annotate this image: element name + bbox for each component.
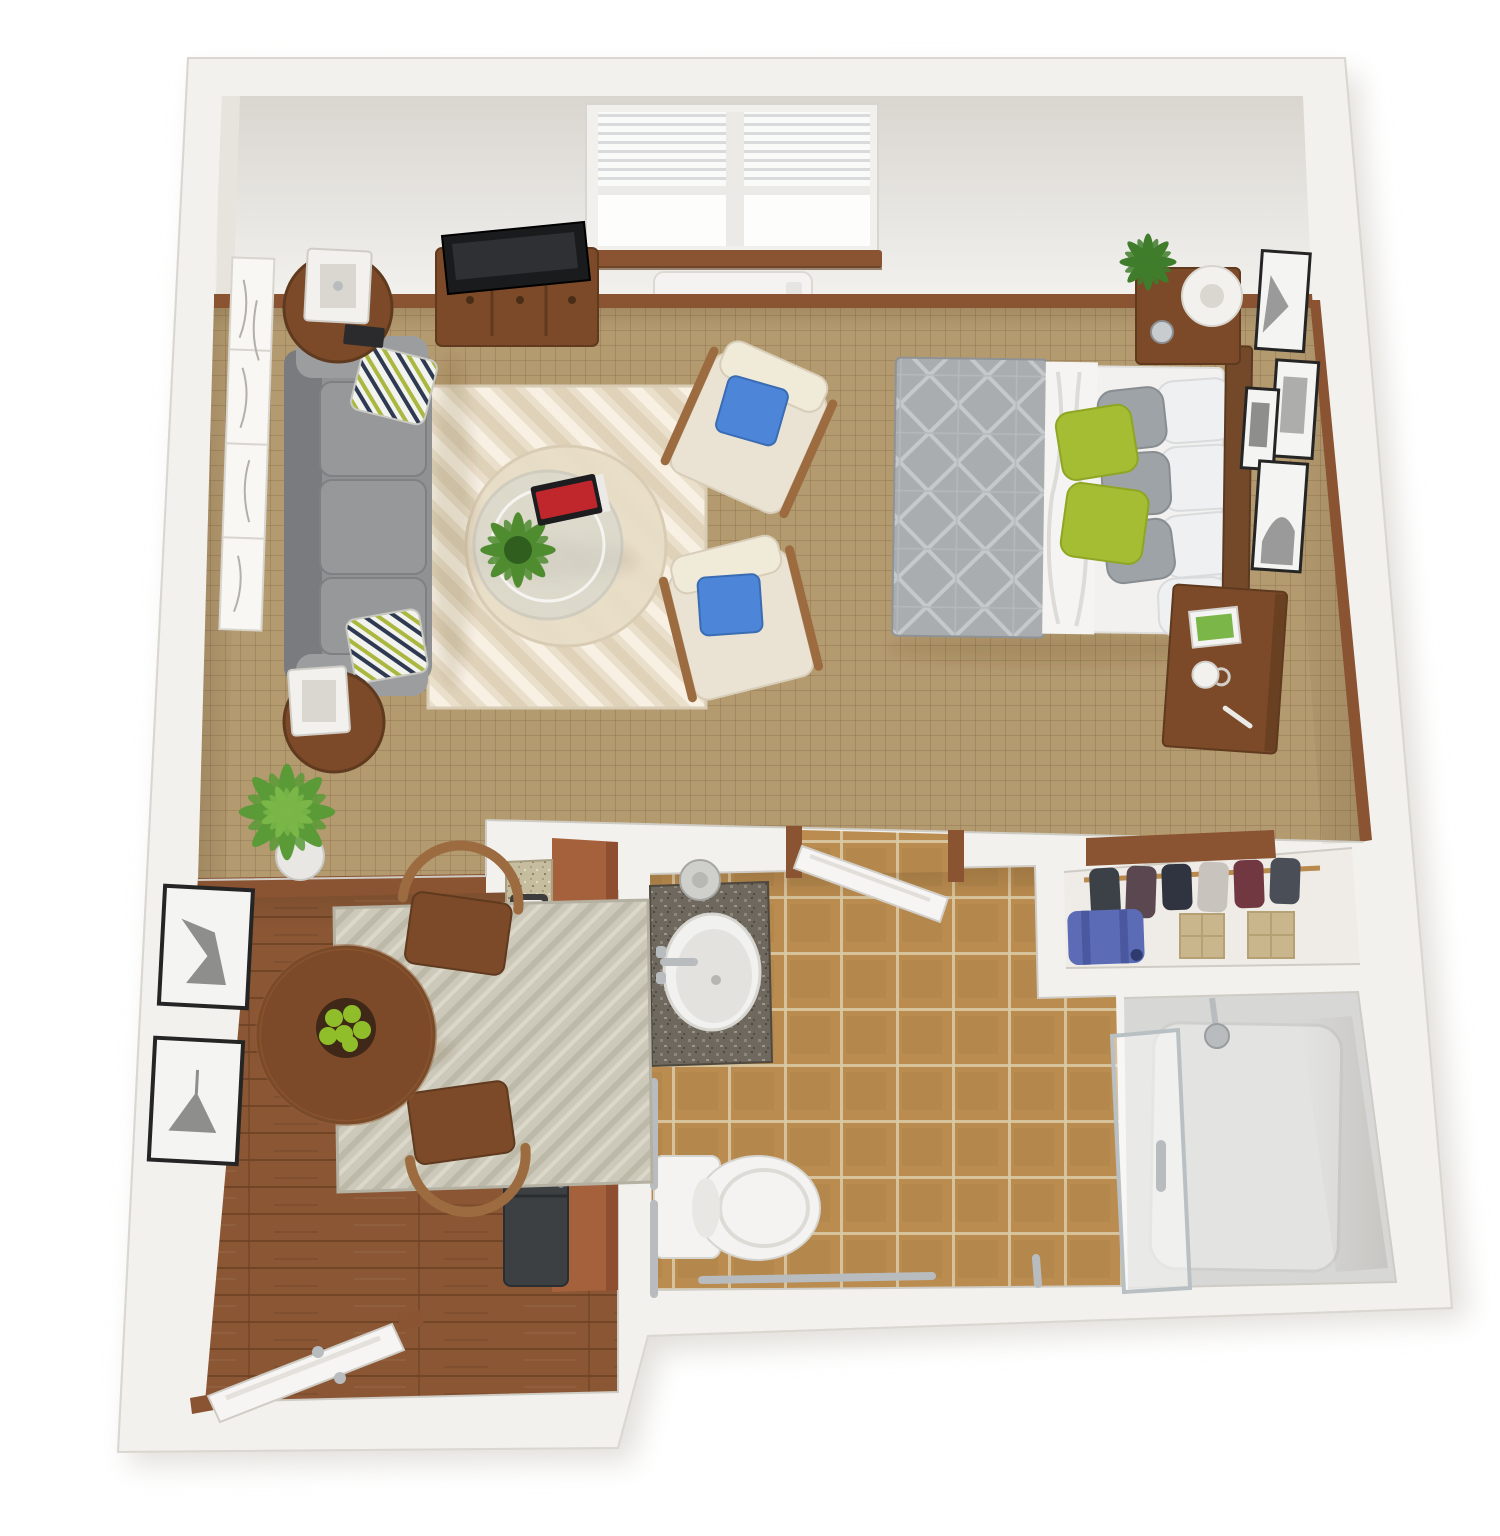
sofa-back — [284, 350, 322, 682]
toilet-hinge — [692, 1178, 720, 1238]
drawer-knob — [516, 296, 524, 304]
grab-bar-horizontal — [702, 1276, 932, 1280]
sink-drain — [711, 975, 721, 985]
nightstand-plant — [1119, 233, 1176, 290]
window-with-blinds — [578, 104, 882, 270]
door-jamb-right — [948, 830, 964, 882]
floor-plan-canvas — [0, 0, 1500, 1536]
door-handle — [312, 1346, 324, 1358]
blue-throw-pillow — [697, 574, 763, 636]
desk-photo-frame — [1189, 607, 1241, 648]
faucet-handle — [656, 946, 666, 958]
sash-rail-right — [744, 186, 870, 195]
floor-plan-render — [0, 0, 1500, 1536]
round-dining-table — [258, 947, 434, 1123]
garment — [1233, 859, 1265, 908]
shower — [1112, 998, 1388, 1292]
garment — [1197, 861, 1230, 913]
garment — [1089, 867, 1121, 917]
accent-chair-bottom — [659, 530, 820, 703]
writing-desk — [1162, 584, 1287, 754]
garment — [1269, 857, 1301, 904]
shower-door-handle — [1156, 1140, 1166, 1192]
drawer-knob — [568, 296, 576, 304]
blinds-right — [744, 112, 870, 188]
glass-sliding-door — [1112, 1030, 1190, 1292]
door-handle-lower — [334, 1372, 346, 1384]
window-mullion — [726, 112, 744, 246]
grab-bar-short — [1036, 1258, 1038, 1284]
alarm-clock — [1151, 321, 1173, 343]
suitcase — [1067, 909, 1145, 966]
faucet-spout — [660, 958, 698, 966]
chair-seat — [404, 891, 513, 976]
gray-duvet — [892, 358, 1048, 638]
print-mast — [196, 1070, 197, 1094]
granite-vanity — [650, 860, 772, 1066]
plant-center — [504, 536, 532, 564]
chair-seat — [407, 1080, 516, 1165]
green-pillow — [1059, 481, 1150, 565]
seat-cushion — [320, 480, 426, 574]
window-sill — [578, 250, 882, 268]
blinds-left — [598, 112, 726, 188]
window-sill-shadow — [578, 266, 882, 270]
coffee-mug — [1192, 661, 1220, 689]
lamp-top — [1200, 284, 1224, 308]
green-pillow — [1054, 403, 1140, 482]
gray-sofa — [284, 336, 439, 696]
jar-lid — [692, 872, 708, 888]
lamp-finial — [333, 281, 343, 291]
drawer-knob — [466, 296, 474, 304]
frame-art — [1249, 402, 1270, 447]
toilet — [654, 1156, 820, 1260]
book-stack — [343, 324, 385, 348]
tv-console — [436, 222, 598, 346]
lamp-shade-inner — [302, 680, 336, 722]
garment — [1161, 863, 1193, 910]
frame-art — [1280, 376, 1308, 434]
chevron-throw-pillow — [345, 608, 429, 684]
sash-rail-left — [598, 186, 726, 195]
photo-image — [1196, 613, 1234, 641]
sofa-shadow — [432, 355, 472, 685]
faucet-handle — [656, 972, 666, 984]
shower-head-face — [1205, 1024, 1229, 1048]
